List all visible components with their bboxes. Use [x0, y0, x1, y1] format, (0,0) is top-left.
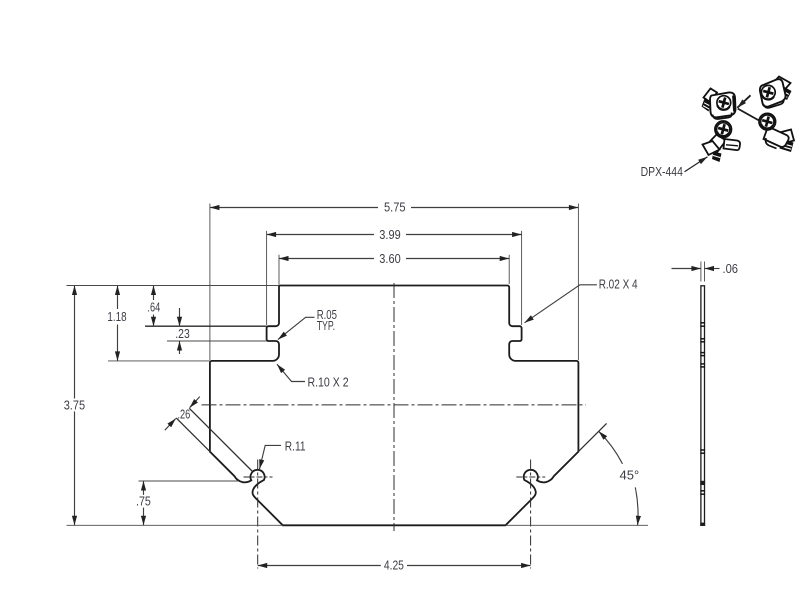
svg-text:R.10 X 2: R.10 X 2	[308, 376, 349, 390]
svg-text:3.60: 3.60	[379, 251, 400, 266]
svg-text:3.75: 3.75	[64, 398, 85, 413]
svg-text:.06: .06	[723, 261, 739, 276]
svg-text:.64: .64	[147, 300, 160, 315]
svg-text:TYP.: TYP.	[317, 319, 335, 333]
svg-text:R.02 X 4: R.02 X 4	[599, 278, 638, 292]
svg-text:DPX-444: DPX-444	[641, 165, 683, 179]
svg-text:3.99: 3.99	[379, 227, 400, 242]
svg-text:1.18: 1.18	[107, 309, 126, 324]
svg-text:4.25: 4.25	[384, 558, 404, 573]
svg-text:R.11: R.11	[285, 440, 306, 454]
svg-text:5.75: 5.75	[384, 200, 406, 215]
svg-text:.26: .26	[178, 407, 191, 422]
svg-text:.23: .23	[175, 326, 190, 341]
svg-text:45°: 45°	[620, 467, 640, 482]
svg-text:.75: .75	[136, 493, 151, 508]
